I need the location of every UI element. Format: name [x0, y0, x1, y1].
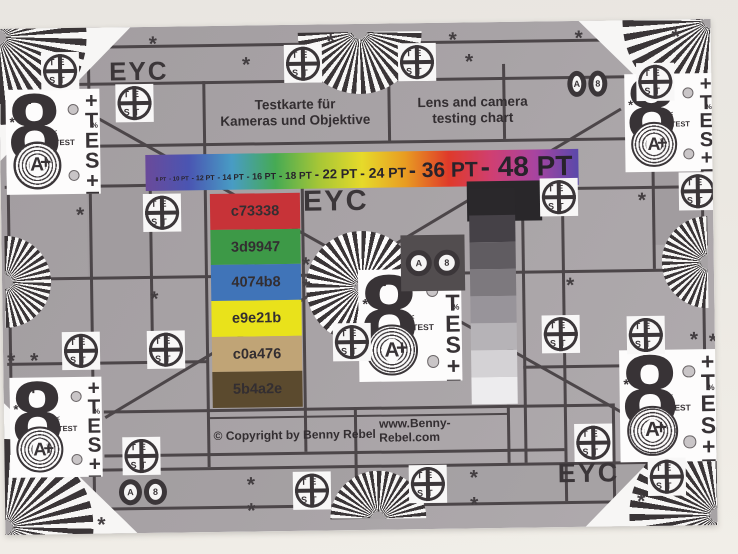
- half-fan-right: [661, 216, 708, 309]
- vertical-test-label: +TES+T: [699, 75, 714, 172]
- target-te-label: TE: [341, 328, 361, 338]
- target-te-label: TE: [644, 68, 664, 78]
- plus-mark: +: [655, 417, 667, 440]
- pt-label: - 22 PT: [315, 166, 358, 182]
- grayscale-step: [470, 242, 516, 270]
- half-fan-left: [4, 235, 52, 328]
- gray-dot-icon: [70, 391, 81, 402]
- vertical-test-label: +TES+T: [87, 379, 102, 478]
- gray-dot-icon: [683, 365, 695, 377]
- target-te-label: TE: [49, 57, 69, 67]
- mini-test-label: TEST: [58, 424, 77, 433]
- color-patch-label: 4074b8: [231, 274, 280, 291]
- asterisk-mark: *: [362, 297, 368, 313]
- title-de-line2: Kameras und Objektive: [220, 111, 370, 129]
- website-label: www.Benny-Rebel.com: [379, 415, 507, 445]
- test-target: TEST: [284, 44, 323, 83]
- pt-label: - 12 PT: [192, 175, 215, 182]
- asterisk-mark: *: [247, 473, 256, 497]
- target-st-label: ST: [406, 66, 426, 76]
- grayscale-step: [470, 296, 516, 324]
- arrows-mark: <<<: [662, 111, 673, 118]
- color-patch: 5b4a2e: [212, 371, 302, 408]
- twin-circle-icon: A8: [567, 69, 607, 100]
- target-te-label: TE: [151, 199, 171, 209]
- arrows-mark: <<<: [660, 392, 673, 400]
- shaded-cell: [87, 184, 150, 280]
- asterisk-mark: *: [638, 189, 647, 213]
- gray-dot-icon: [684, 149, 695, 160]
- gray-dot-icon: [68, 170, 80, 182]
- asterisk-mark: *: [30, 349, 39, 373]
- asterisk-mark: *: [690, 328, 699, 352]
- grayscale-wedge: [469, 188, 518, 405]
- target-te-label: TE: [582, 429, 602, 439]
- grayscale-step: [471, 323, 517, 351]
- asterisk-mark: *: [709, 330, 718, 354]
- asterisk-mark: *: [13, 402, 18, 417]
- asterisk-mark: *: [242, 53, 251, 77]
- pt-label: - 36 PT: [409, 158, 478, 183]
- test-target: TEST: [409, 465, 448, 504]
- target-st-label: ST: [292, 68, 312, 78]
- test-target: TEST: [636, 63, 675, 102]
- target-st-label: ST: [548, 201, 568, 211]
- test-target: TEST: [648, 457, 687, 496]
- target-te-label: TE: [301, 477, 321, 487]
- mini-test-label: TEST: [669, 402, 691, 412]
- asterisk-mark: *: [97, 514, 106, 535]
- asterisk-mark: *: [149, 33, 158, 57]
- circled-letter-icon: 8: [588, 71, 607, 97]
- asterisk-mark: *: [566, 274, 575, 298]
- vertical-test-label: +TES+T: [84, 91, 100, 195]
- color-patch-column: c733383d99474074b8e9e21bc0a4765b4a2e: [210, 193, 303, 408]
- target-st-label: ST: [417, 488, 437, 498]
- asterisk-mark: *: [150, 288, 159, 312]
- asterisk-mark: *: [327, 30, 336, 54]
- target-st-label: ST: [124, 107, 144, 117]
- percent-mark: %: [705, 102, 712, 111]
- circled-letter-icon: 8: [144, 479, 167, 505]
- color-patch-label: 3d9947: [231, 239, 280, 256]
- circled-a-icon: A: [627, 405, 679, 457]
- test-target: TEST: [679, 172, 718, 211]
- target-st-label: ST: [644, 86, 664, 96]
- plus-mark: +: [43, 437, 54, 459]
- test-chart-card: 8 PT - 10 PT - 12 PT - 14 PT - 16 PT - 1…: [0, 19, 717, 535]
- grayscale-step: [471, 377, 517, 405]
- circled-a-icon: A: [366, 324, 418, 376]
- grayscale-step: [469, 215, 515, 243]
- percent-mark: %: [452, 302, 459, 311]
- website-text: www.Benny-Rebel.com: [379, 410, 508, 450]
- test-target: TEST: [542, 315, 581, 354]
- pt-label: - 18 PT: [279, 171, 312, 182]
- photo-of-test-chart: 8 PT - 10 PT - 12 PT - 14 PT - 16 PT - 1…: [0, 0, 738, 554]
- test-target: TEST: [398, 43, 437, 82]
- gray-dot-icon: [67, 104, 79, 116]
- eyc-top-left: EYC: [109, 56, 169, 88]
- test-target: TEST: [122, 437, 161, 476]
- plus-mark: +: [657, 132, 668, 153]
- asterisk-mark: *: [302, 254, 311, 278]
- plus-mark: +: [378, 270, 390, 294]
- test-target: TEST: [115, 84, 154, 123]
- siemens-fan-icon: [4, 235, 51, 328]
- target-st-label: ST: [635, 339, 655, 349]
- target-st-label: ST: [656, 481, 676, 491]
- test-block-8a: 8A+TES+TTEST++*%<<<: [5, 89, 100, 195]
- target-te-label: TE: [155, 336, 175, 346]
- target-te-label: TE: [550, 320, 570, 330]
- copyright-label: © Copyright by Benny Rebel: [213, 426, 375, 442]
- asterisk-mark: *: [449, 29, 458, 53]
- mini-test-label: TEST: [412, 322, 434, 332]
- mini-test-label: TEST: [671, 119, 690, 128]
- color-patch: 3d9947: [210, 228, 300, 265]
- asterisk-mark: *: [465, 50, 474, 74]
- vertical-test-label: +TES+T: [700, 351, 717, 462]
- gray-dot-icon: [684, 436, 696, 448]
- target-te-label: TE: [656, 463, 676, 473]
- target-st-label: ST: [301, 495, 321, 505]
- eyc-bottom-right: EYC: [558, 457, 620, 489]
- pt-label: - 14 PT: [217, 173, 243, 182]
- grayscale-step: [469, 188, 515, 216]
- grayscale-step: [471, 350, 517, 378]
- mini-test-label: TEST: [55, 138, 75, 147]
- test-block-8a: 8A+TES+TTEST++*%<<<: [619, 349, 717, 462]
- test-target: TEST: [143, 193, 182, 232]
- target-st-label: ST: [550, 338, 570, 348]
- target-st-label: ST: [151, 217, 171, 227]
- plus-mark: +: [40, 152, 52, 174]
- asterisk-mark: *: [637, 490, 646, 514]
- arrows-mark: <<<: [49, 415, 60, 422]
- color-patch-label: c73338: [231, 203, 280, 220]
- circled-letter-icon: A: [119, 479, 142, 505]
- vertical-test-letter: +: [700, 75, 712, 94]
- plus-mark: +: [396, 336, 408, 360]
- asterisk-mark: *: [7, 350, 16, 374]
- target-st-label: ST: [582, 447, 602, 457]
- title-en-line2: testing chart: [432, 109, 513, 126]
- percent-mark: %: [707, 383, 714, 392]
- color-patch-label: 5b4a2e: [233, 381, 282, 398]
- test-target: TEST: [574, 423, 613, 462]
- circled-letter-icon: 8: [434, 250, 460, 276]
- circled-letter-icon: A: [567, 71, 586, 97]
- test-target: TEST: [540, 178, 579, 217]
- target-st-label: ST: [49, 75, 69, 85]
- title-de-line1: Testkarte für: [255, 96, 336, 113]
- asterisk-mark: *: [9, 115, 14, 130]
- asterisk-mark: *: [623, 377, 629, 393]
- color-patch: 4074b8: [211, 264, 301, 301]
- asterisk-mark: *: [470, 466, 479, 490]
- pt-label: - 10 PT: [169, 176, 189, 182]
- gray-dot-icon: [71, 454, 82, 465]
- test-target: TEST: [62, 332, 101, 371]
- plus-mark: +: [28, 377, 39, 399]
- twin-circle-icon: A8: [119, 477, 167, 508]
- target-te-label: TE: [406, 48, 426, 58]
- target-te-label: TE: [635, 321, 655, 331]
- asterisk-mark: *: [302, 276, 311, 300]
- percent-mark: %: [93, 407, 100, 416]
- asterisk-mark: *: [575, 27, 584, 51]
- gray-dot-icon: [683, 87, 694, 98]
- asterisk-mark: *: [470, 493, 479, 517]
- asterisk-mark: *: [247, 499, 256, 523]
- circled-a-icon: A: [16, 426, 63, 473]
- target-te-label: TE: [417, 470, 437, 480]
- target-st-label: ST: [155, 354, 175, 364]
- plus-mark: +: [24, 89, 36, 111]
- target-st-label: ST: [687, 195, 707, 205]
- title-en-line1: Lens and camera: [417, 93, 528, 110]
- gray-dot-icon: [427, 355, 439, 367]
- target-te-label: TE: [70, 337, 90, 347]
- circled-a-icon: A: [13, 141, 62, 190]
- color-patch: c0a476: [212, 335, 302, 372]
- asterisk-mark: *: [672, 25, 681, 49]
- color-patch-label: c0a476: [233, 346, 282, 363]
- siemens-fan-icon: [661, 216, 708, 309]
- copyright-text: © Copyright by Benny Rebel: [210, 415, 380, 454]
- twin-circle-icon: A8: [400, 235, 465, 292]
- test-target: TEST: [627, 316, 666, 355]
- test-block-8a: 8A+TES+TTEST++*%<<<: [9, 377, 102, 478]
- target-te-label: TE: [687, 177, 707, 187]
- target-st-label: ST: [341, 346, 361, 356]
- target-te-label: TE: [123, 89, 143, 99]
- percent-mark: %: [91, 120, 98, 129]
- pt-label: - 24 PT: [360, 164, 406, 181]
- test-target: TEST: [147, 330, 186, 369]
- eyc-middle: EYC: [303, 185, 369, 219]
- color-patch-label: e9e21b: [232, 310, 281, 327]
- color-patch: e9e21b: [211, 300, 301, 337]
- grayscale-step: [470, 269, 516, 297]
- target-te-label: TE: [548, 183, 568, 193]
- arrows-mark: <<<: [45, 129, 57, 136]
- asterisk-mark: *: [76, 204, 85, 228]
- asterisk-mark: *: [628, 98, 633, 112]
- pt-label: 8 PT: [156, 177, 167, 183]
- target-te-label: TE: [292, 50, 312, 60]
- color-patch: c73338: [210, 193, 300, 230]
- arrows-mark: <<<: [402, 312, 415, 321]
- pt-label: - 16 PT: [247, 171, 277, 181]
- target-te-label: TE: [130, 442, 150, 452]
- target-st-label: ST: [131, 460, 151, 470]
- target-st-label: ST: [70, 355, 90, 365]
- test-target: TEST: [41, 52, 80, 91]
- test-target: TEST: [293, 471, 332, 510]
- circled-letter-icon: A: [406, 250, 432, 276]
- test-target: TEST: [333, 323, 372, 362]
